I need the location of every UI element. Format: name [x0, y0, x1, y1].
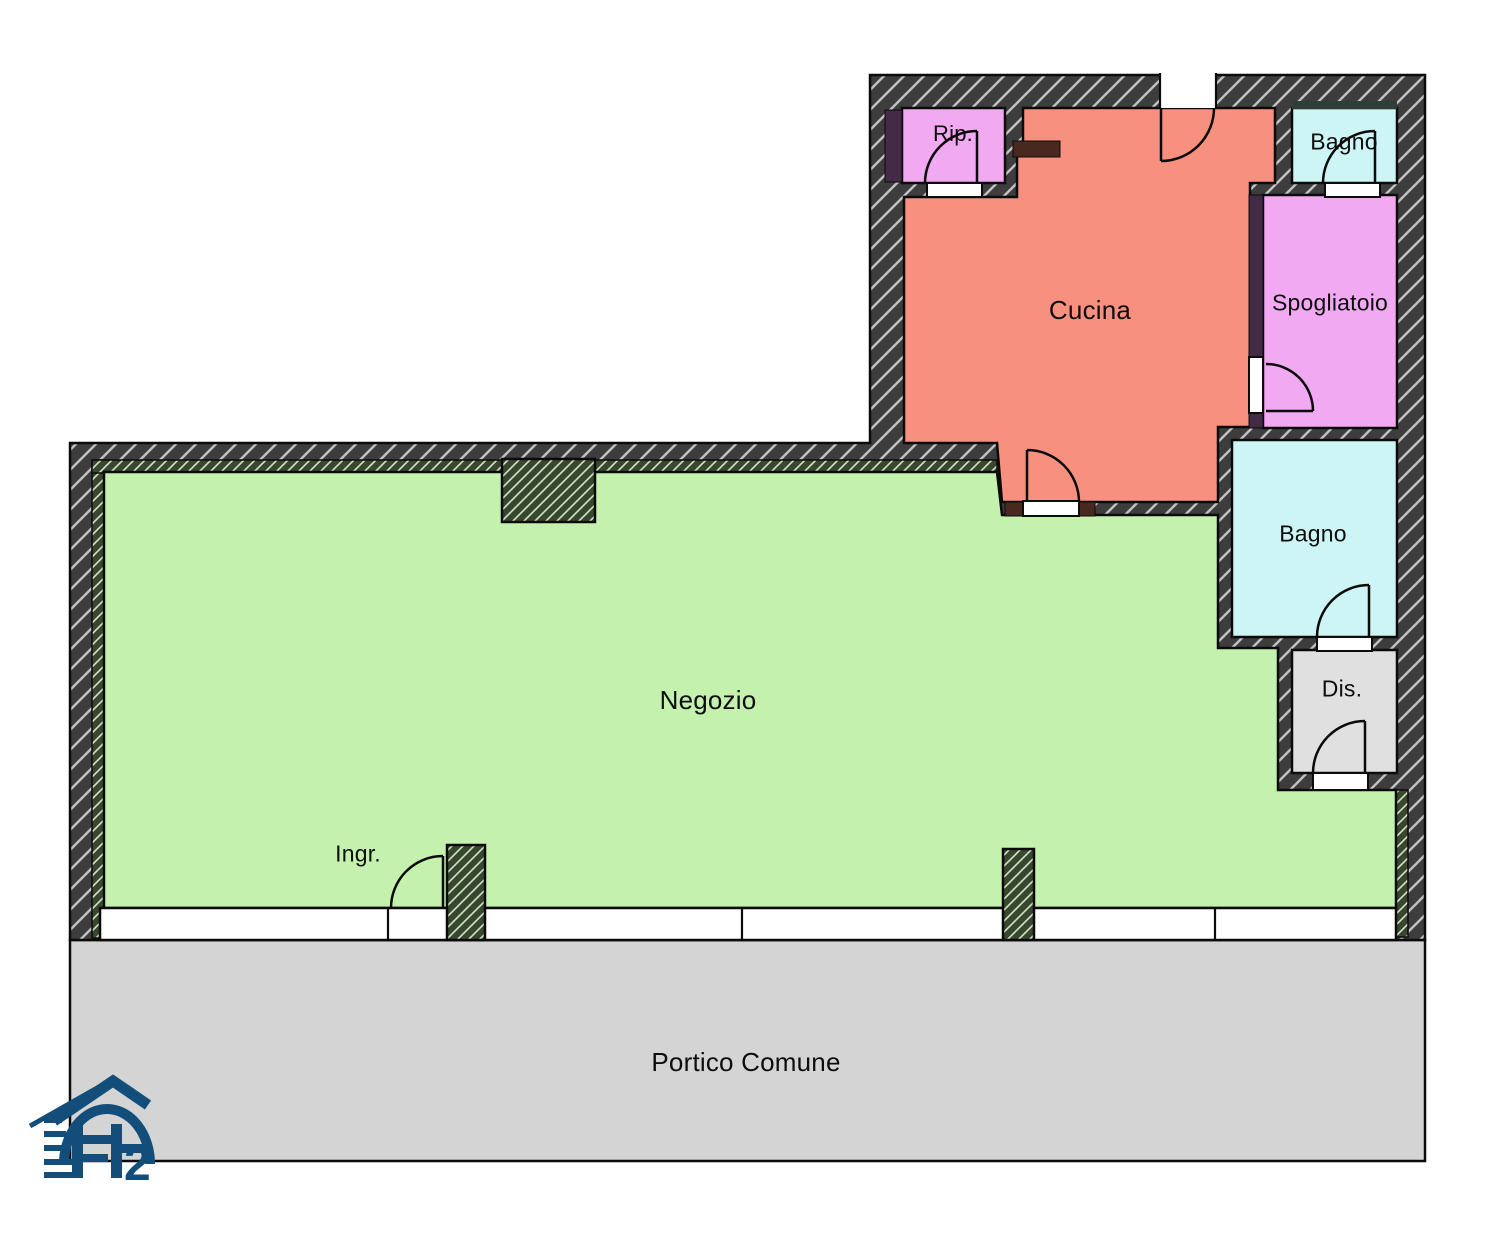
liner-left [92, 460, 104, 938]
wall-stub-cucina [1013, 141, 1060, 157]
room-label-dis: Dis. [1322, 678, 1362, 701]
room-label-bagno-right: Bagno [1279, 523, 1347, 546]
logo-digit: 2 [124, 1138, 151, 1191]
duct-rip [885, 110, 902, 182]
logo-stripe [44, 1159, 72, 1165]
logo-stripe [44, 1131, 66, 1137]
room-label-spogliatoio: Spogliatoio [1272, 292, 1388, 315]
room-label-rip: Rip. [933, 123, 973, 145]
sill-bagno-top [1325, 183, 1380, 197]
logo-f-bar-mid [72, 1154, 108, 1162]
pillar-center [1003, 849, 1034, 940]
bagno-top-band [1292, 101, 1397, 109]
room-label-negozio: Negozio [660, 687, 757, 713]
logo-stripe [44, 1172, 74, 1178]
logo-stripe [44, 1145, 70, 1151]
wall-stub-door-left [1005, 502, 1023, 516]
room-label-portico: Portico Comune [651, 1049, 840, 1075]
logo-stripe [44, 1117, 62, 1123]
sill-spogliatoio [1249, 357, 1263, 413]
sill-cucina-negozio [1023, 501, 1079, 516]
room-label-bagno-top: Bagno [1310, 131, 1378, 154]
logo-f-stem [72, 1124, 83, 1178]
sill-rip [927, 183, 982, 197]
opening-top-wall [1160, 73, 1216, 108]
label-ingresso: Ingr. [335, 843, 381, 866]
wall-stub-door-right [1079, 502, 1095, 516]
storefront-glazing [100, 908, 1396, 940]
floor-plan-page: 2 Rip. Bagno Cucina Spogliatoio Bagno Di… [0, 0, 1499, 1237]
room-dis-area [1292, 650, 1397, 773]
room-label-cucina: Cucina [1049, 297, 1131, 323]
sill-bagno-right [1317, 637, 1372, 651]
sill-dis [1313, 773, 1368, 790]
logo-f-bar-top [72, 1135, 112, 1144]
pillar-left [447, 845, 485, 940]
wall-notch [502, 459, 595, 522]
